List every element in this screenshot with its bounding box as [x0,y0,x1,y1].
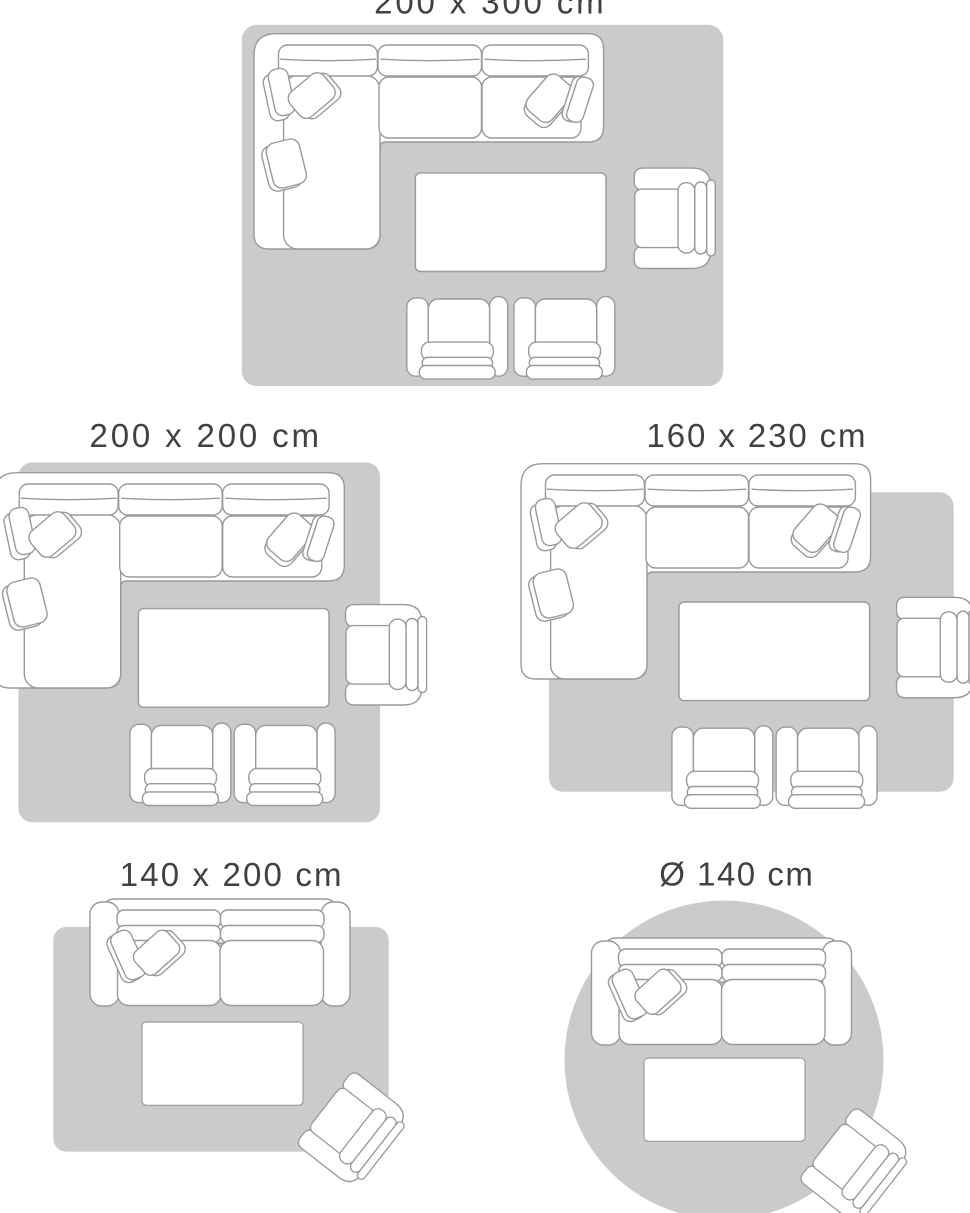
svg-text:200 x 200 cm: 200 x 200 cm [90,417,322,454]
svg-text:140 x 200 cm: 140 x 200 cm [120,856,344,893]
svg-text:Ø 140 cm: Ø 140 cm [659,856,814,893]
svg-text:200 x 300 cm: 200 x 300 cm [374,0,606,21]
svg-text:160 x 230 cm: 160 x 230 cm [647,417,868,454]
